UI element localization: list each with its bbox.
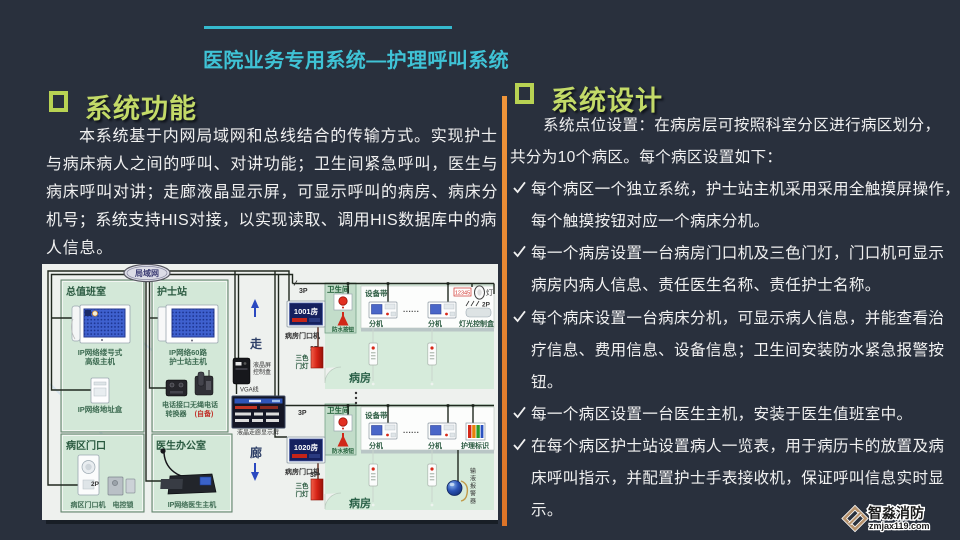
svg-text:液晶走廊显示屏: 液晶走廊显示屏 bbox=[237, 429, 279, 437]
svg-text:三色: 三色 bbox=[296, 353, 310, 362]
svg-text:灯光控制盒: 灯光控制盒 bbox=[459, 319, 495, 328]
svg-text:走: 走 bbox=[250, 336, 262, 351]
svg-text:2P: 2P bbox=[482, 302, 491, 309]
svg-text:转换器: 转换器 bbox=[166, 409, 188, 418]
svg-text:护士站主机: 护士站主机 bbox=[169, 356, 207, 366]
svg-text:病房: 病房 bbox=[349, 496, 371, 510]
svg-text:报: 报 bbox=[470, 482, 476, 490]
svg-text:警: 警 bbox=[470, 490, 476, 498]
svg-text:病区门口机: 病区门口机 bbox=[71, 500, 106, 509]
svg-text:廊: 廊 bbox=[250, 445, 262, 460]
svg-text:病区门口: 病区门口 bbox=[66, 439, 106, 452]
svg-text:无绳电话: 无绳电话 bbox=[189, 400, 218, 409]
svg-text:分机: 分机 bbox=[428, 441, 442, 450]
svg-text:1020房: 1020房 bbox=[294, 442, 319, 452]
svg-text:护理标识: 护理标识 bbox=[461, 441, 489, 450]
svg-text:器: 器 bbox=[470, 498, 476, 505]
svg-text:分机: 分机 bbox=[369, 319, 383, 328]
svg-text:护士站: 护士站 bbox=[157, 285, 187, 298]
svg-text:输: 输 bbox=[470, 467, 476, 475]
svg-text:分机: 分机 bbox=[369, 441, 383, 450]
svg-text:IP网络60路: IP网络60路 bbox=[169, 347, 207, 357]
svg-text:灯: 灯 bbox=[486, 288, 493, 297]
svg-text:......: ...... bbox=[403, 305, 419, 314]
svg-text:总值班室: 总值班室 bbox=[66, 285, 106, 298]
svg-text:电控锁: 电控锁 bbox=[113, 500, 134, 509]
svg-text:卫生间: 卫生间 bbox=[327, 405, 350, 415]
svg-text:门灯: 门灯 bbox=[296, 361, 310, 370]
svg-text:3P: 3P bbox=[310, 472, 319, 479]
svg-text:病房: 病房 bbox=[349, 371, 371, 385]
svg-text:电话接口: 电话接口 bbox=[162, 400, 190, 409]
svg-text:门灯: 门灯 bbox=[296, 489, 310, 498]
svg-text:防水按钮: 防水按钮 bbox=[332, 447, 355, 455]
svg-text:防水按钮: 防水按钮 bbox=[332, 326, 355, 334]
svg-text:zmjax119.com: zmjax119.com bbox=[869, 521, 930, 531]
svg-text:高级主机: 高级主机 bbox=[85, 356, 115, 366]
svg-text:局域网: 局域网 bbox=[134, 268, 159, 278]
svg-text:液: 液 bbox=[470, 475, 476, 483]
svg-text:IP网络缕号式: IP网络缕号式 bbox=[78, 347, 123, 357]
svg-text:控制盒: 控制盒 bbox=[253, 368, 271, 376]
svg-text:1001房: 1001房 bbox=[294, 306, 319, 316]
svg-text:3P: 3P bbox=[298, 410, 307, 417]
svg-text:三色: 三色 bbox=[296, 481, 310, 490]
svg-text:IP网络医生主机: IP网络医生主机 bbox=[168, 500, 217, 509]
svg-text:病房门口机: 病房门口机 bbox=[285, 331, 320, 340]
svg-text:IP网络地址盒: IP网络地址盒 bbox=[78, 404, 123, 414]
svg-text:VGA线: VGA线 bbox=[240, 386, 259, 394]
svg-text:智淼消防: 智淼消防 bbox=[867, 505, 924, 521]
svg-text:设备带: 设备带 bbox=[365, 288, 388, 298]
svg-text:12345: 12345 bbox=[455, 290, 470, 296]
svg-text:液晶屏: 液晶屏 bbox=[253, 361, 271, 369]
svg-text:2P: 2P bbox=[91, 481, 100, 488]
svg-text:卫生间: 卫生间 bbox=[327, 284, 350, 294]
svg-text:设备带: 设备带 bbox=[365, 410, 388, 420]
svg-text:(自备): (自备) bbox=[195, 409, 214, 418]
svg-text:分机: 分机 bbox=[428, 319, 442, 328]
svg-text:......: ...... bbox=[403, 426, 419, 435]
svg-text:3P: 3P bbox=[299, 288, 308, 295]
